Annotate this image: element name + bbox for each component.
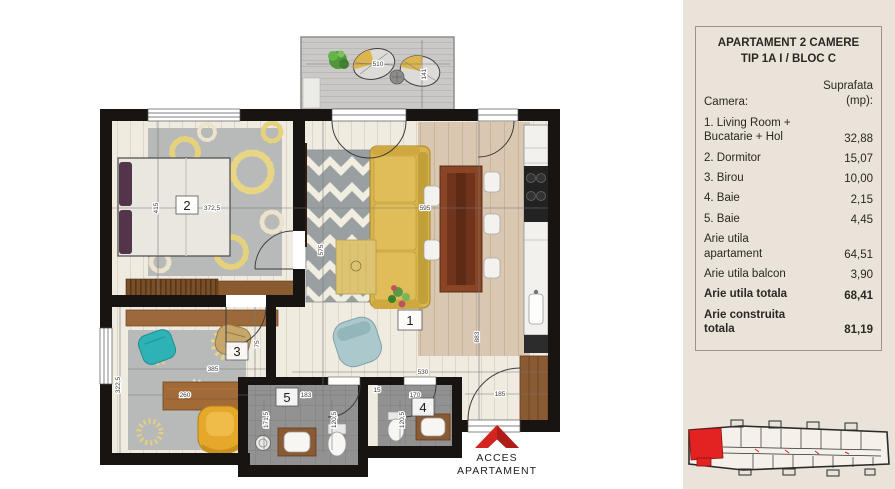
side-panel: APARTAMENT 2 CAMERE TIP 1A I / BLOC C Ca…: [683, 0, 895, 489]
spec-row-arie-utila-totala: Arie utila totala 68,41: [704, 287, 873, 301]
spec-row-dormitor: 2. Dormitor 15,07: [704, 151, 873, 165]
dim-bath5-depth: 120,5: [331, 411, 338, 428]
kitchen: [520, 125, 548, 430]
header-suprafata: Suprafata (mp):: [823, 79, 873, 108]
exterior-patch: [362, 458, 458, 484]
bedroom-window: [148, 109, 240, 121]
dim-living-width: 595: [420, 205, 431, 212]
balcony-table-icon: [390, 70, 404, 84]
bath4-vanity: [416, 414, 450, 440]
bedroom-shelf: [218, 281, 304, 297]
spec-row-baie4: 4. Baie 2,15: [704, 191, 873, 205]
room-label-birou: 3: [233, 344, 240, 359]
coffee-table: [336, 240, 376, 294]
dim-birou-width: 385: [208, 366, 219, 373]
apartment-floorplan-page: 510 141 372,5 415 595 575 883 385 260 32…: [0, 0, 895, 489]
access-label-line2: APARTAMENT: [457, 465, 537, 477]
dim-birou-height: 322,5: [115, 376, 122, 393]
sofa: [370, 146, 430, 309]
bath4-sink: [421, 418, 445, 436]
header-camera: Camera:: [704, 96, 748, 108]
bath5-vanity: [278, 428, 316, 456]
dining-chair: [484, 258, 500, 278]
dining-chair: [424, 186, 440, 206]
spec-title: APARTAMENT 2 CAMERE TIP 1A I / BLOC C: [704, 35, 873, 67]
dim-living-height: 575: [318, 244, 325, 255]
dining-chair: [484, 172, 500, 192]
dim-entry-width: 185: [495, 391, 506, 398]
spec-row-arie-utila-apartament: Arie utila apartament 64,51: [704, 232, 873, 261]
spec-row-baie5: 5. Baie 4,45: [704, 212, 873, 226]
building-minimap: [683, 402, 895, 489]
room-label-living: 1: [406, 313, 413, 328]
balcony-mat: [303, 78, 320, 108]
spec-row-arie-utila-balcon: Arie utila balcon 3,90: [704, 267, 873, 281]
room-label-baie5: 5: [283, 390, 290, 405]
kitchen-sink: [529, 294, 543, 324]
dining-chair: [424, 240, 440, 260]
dim-balcony-depth: 141: [421, 68, 428, 79]
yellow-armchair: [198, 406, 242, 455]
kitchen-base: [524, 335, 548, 353]
spec-row-arie-construita-totala: Arie construita totala 81,19: [704, 308, 873, 337]
floor-plan: 510 141 372,5 415 595 575 883 385 260 32…: [0, 0, 683, 489]
dim-hall-width: 530: [418, 369, 429, 376]
dining-chair: [484, 214, 500, 234]
dim-dormitor-width: 372,5: [204, 205, 221, 212]
washing-machine-icon: [256, 436, 271, 451]
spec-title-line2: TIP 1A I / BLOC C: [704, 51, 873, 67]
headboard-cushion: [119, 162, 132, 206]
dim-total-height: 883: [474, 331, 481, 342]
entry-wardrobe: [520, 356, 548, 430]
balcony: [301, 37, 454, 111]
office-window: [100, 328, 112, 384]
spec-row-birou: 3. Birou 10,00: [704, 171, 873, 185]
spec-title-line1: APARTAMENT 2 CAMERE: [704, 35, 873, 51]
dim-bath5-height: 171,5: [263, 411, 270, 428]
bedroom-bench: [126, 279, 218, 297]
access-label-line1: ACCES: [476, 452, 517, 464]
spec-row-living: 1. Living Room + Bucatarie + Hol 32,88: [704, 116, 873, 145]
dim-bath5-width: 183: [301, 392, 312, 399]
room-label-dormitor: 2: [183, 198, 190, 213]
bath5-sink: [284, 432, 310, 452]
dim-wall-thickness: 15: [373, 387, 381, 394]
dim-dormitor-height: 415: [153, 202, 160, 213]
dim-door-width: 75: [254, 340, 261, 348]
spec-header: Camera: Suprafata (mp):: [704, 79, 873, 108]
dim-balcony-width: 510: [373, 61, 384, 68]
room-label-baie4: 4: [419, 400, 426, 415]
dim-desk-width: 260: [180, 392, 191, 399]
headboard-cushion: [119, 210, 132, 254]
spec-table: APARTAMENT 2 CAMERE TIP 1A I / BLOC C Ca…: [695, 26, 882, 351]
dim-bath4-depth: 120,5: [399, 411, 406, 428]
